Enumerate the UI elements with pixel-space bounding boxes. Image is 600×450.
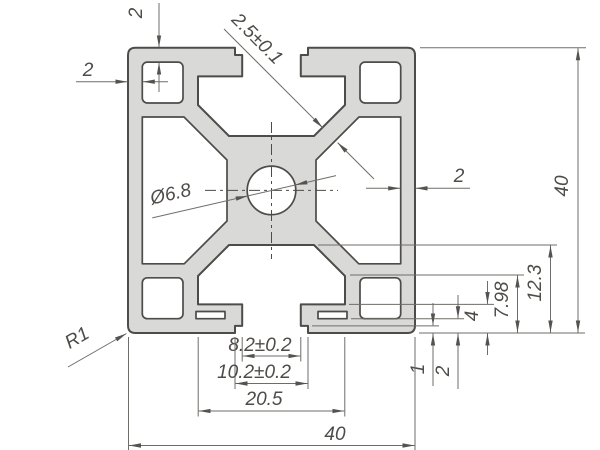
dim-label-slit-bottom: 2	[433, 365, 454, 377]
corner-channel-top-left	[142, 62, 183, 103]
dim-label-wall-right: 2	[453, 166, 465, 187]
dim-label-slot-opening: 8.2±0.2	[228, 335, 292, 356]
technical-drawing-canvas: 2 2 2 2.5±0.1 Ø6.8 R1 40	[0, 0, 600, 450]
dim-label-cavity-width: 20.5	[245, 389, 283, 410]
corner-channel-bottom-right	[360, 278, 401, 319]
corner-channel-bottom-left	[142, 278, 183, 319]
dim-label-corner-radius: R1	[61, 323, 93, 353]
corner-channel-top-right	[360, 62, 401, 103]
profile-drawing: 2 2 2 2.5±0.1 Ø6.8 R1 40	[0, 0, 600, 450]
lip-slit-right	[318, 312, 347, 319]
dim-label-step-depth: 1	[408, 364, 429, 375]
dim-label-overall-width: 40	[324, 424, 346, 445]
dim-label-slot-step: 10.2±0.2	[217, 362, 291, 383]
dim-label-wall-left: 2	[82, 60, 94, 81]
dim-label-lip-top: 4	[462, 311, 483, 322]
dim-corner-radius: R1	[61, 323, 126, 367]
dim-label-wall-top: 2	[126, 7, 147, 19]
dim-label-overall-height: 40	[552, 175, 573, 197]
lip-slit-left	[196, 312, 225, 319]
dim-label-cavity-depth: 12.3	[525, 264, 546, 301]
dim-label-lip-ledge: 7.98	[492, 281, 513, 318]
dim-slot-opening: 8.2±0.2	[228, 335, 300, 362]
